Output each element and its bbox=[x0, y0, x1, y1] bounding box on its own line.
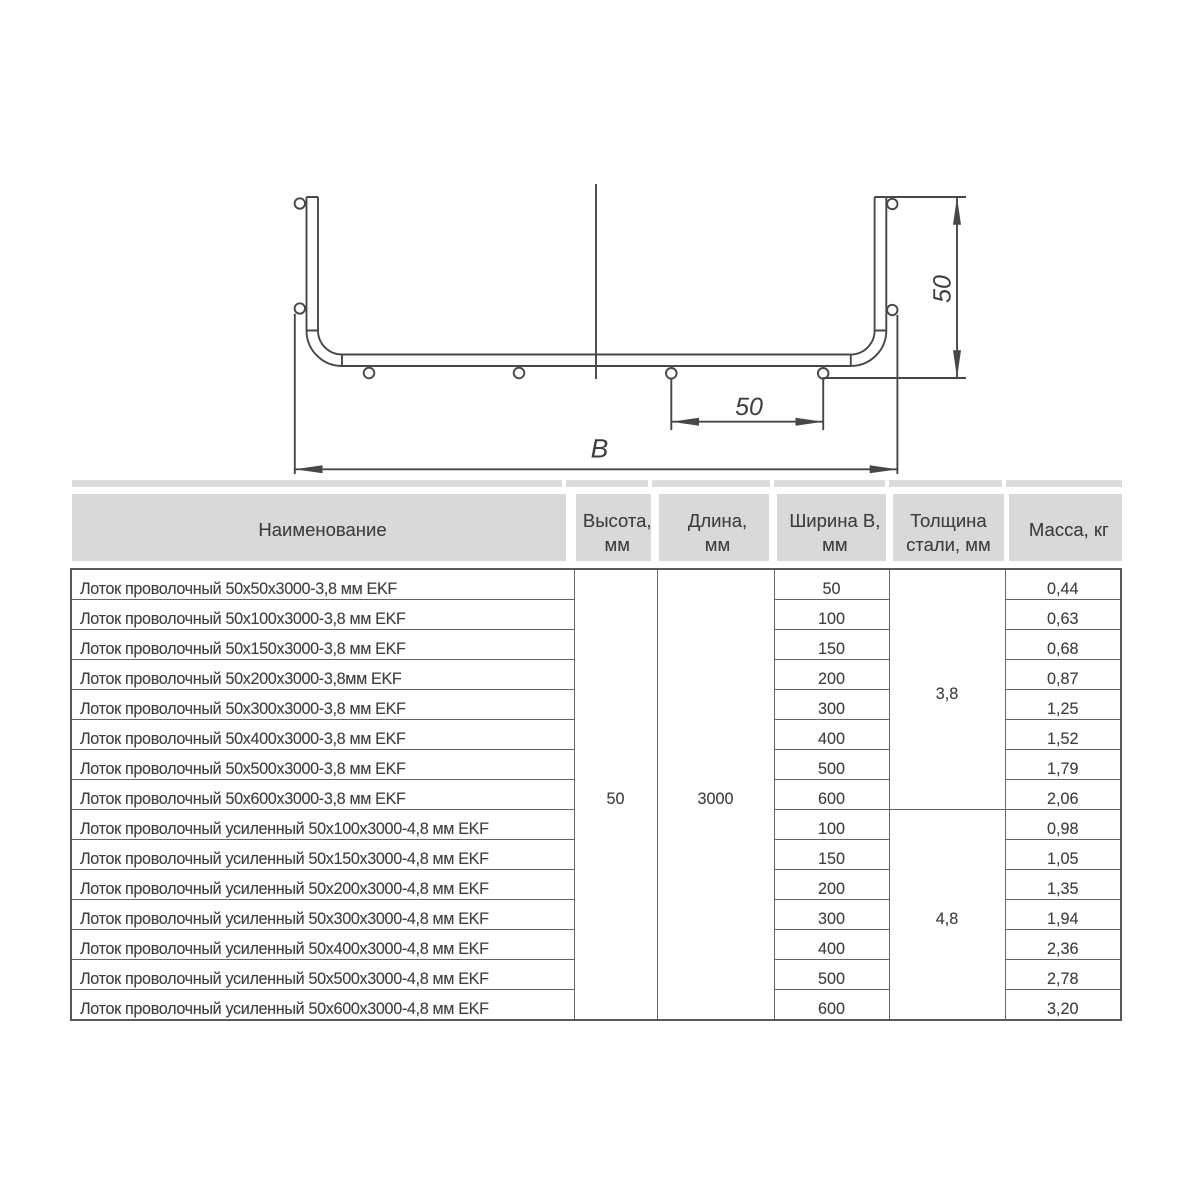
svg-text:В: В bbox=[591, 434, 609, 464]
svg-text:50: 50 bbox=[735, 393, 763, 421]
svg-text:50: 50 bbox=[929, 275, 957, 303]
